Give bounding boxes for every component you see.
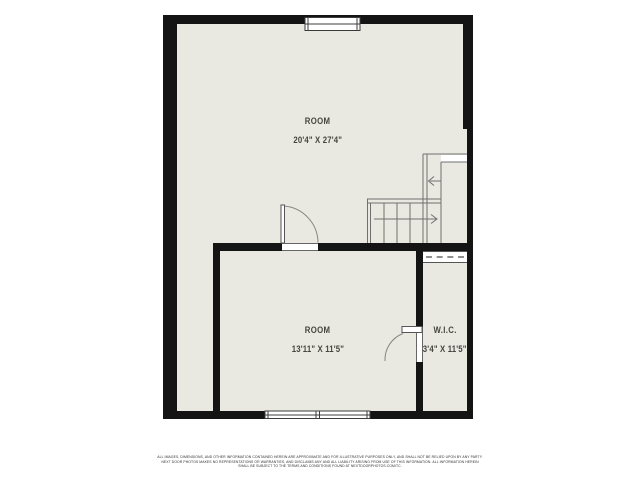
plan-detail-overlay — [0, 0, 640, 480]
wic-name: W.I.C. — [433, 326, 456, 336]
stair-down-arrow-icon — [429, 177, 442, 186]
room-upper-dimensions: 20'4" X 27'4" — [238, 136, 398, 146]
window-top-icon — [305, 18, 360, 31]
wic-dimensions: 3'4" X 11'5" — [403, 345, 487, 355]
room-lower-label-group: ROOM 13'11" X 11'5" — [238, 320, 398, 355]
floor-plan-canvas: ROOM 20'4" X 27'4" ROOM 13'11" X 11'5" W… — [0, 0, 640, 480]
disclaimer-text: ALL IMAGES, DIMENSIONS, AND OTHER INFORM… — [0, 455, 640, 469]
stair-enclosure-wall — [441, 155, 467, 162]
stair-up-arrow-icon — [374, 215, 437, 224]
room-upper-name: ROOM — [305, 117, 331, 127]
door-upper-room — [281, 205, 318, 243]
room-upper-label-group: ROOM 20'4" X 27'4" — [238, 111, 398, 146]
door-swing-arc-icon — [284, 206, 318, 243]
window-bottom-icon — [265, 411, 370, 419]
wic-label-group: W.I.C. 3'4" X 11'5" — [403, 320, 487, 355]
room-lower-dimensions: 13'11" X 11'5" — [238, 345, 398, 355]
door-leaf-icon — [281, 205, 285, 243]
disclaimer-line-3: SHALL BE SUBJECT TO THE TERMS AND CONDIT… — [0, 464, 640, 469]
room-lower-name: ROOM — [305, 326, 331, 336]
staircase — [367, 154, 467, 243]
